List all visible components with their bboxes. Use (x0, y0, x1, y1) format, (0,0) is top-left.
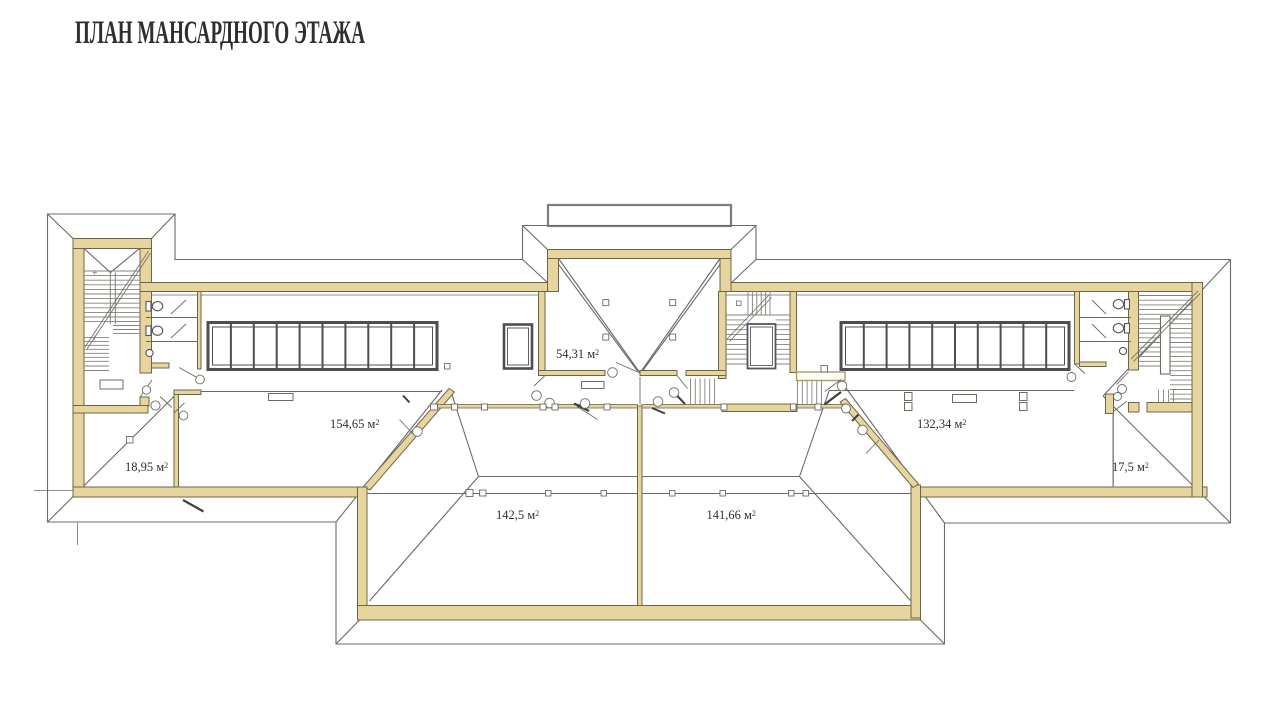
svg-text:154,65 м2: 154,65 м2 (330, 417, 379, 431)
svg-text:ПЛАН МАНСАРДНОГО ЭТАЖА: ПЛАН МАНСАРДНОГО ЭТАЖА (75, 15, 365, 51)
svg-text:132,34 м2: 132,34 м2 (917, 417, 966, 431)
svg-text:18,95 м2: 18,95 м2 (125, 460, 168, 474)
svg-text:17,5 м2: 17,5 м2 (1112, 460, 1149, 474)
svg-text:142,5 м2: 142,5 м2 (496, 508, 539, 522)
svg-text:141,66 м2: 141,66 м2 (707, 508, 756, 522)
svg-text:54,31 м2: 54,31 м2 (556, 347, 599, 361)
